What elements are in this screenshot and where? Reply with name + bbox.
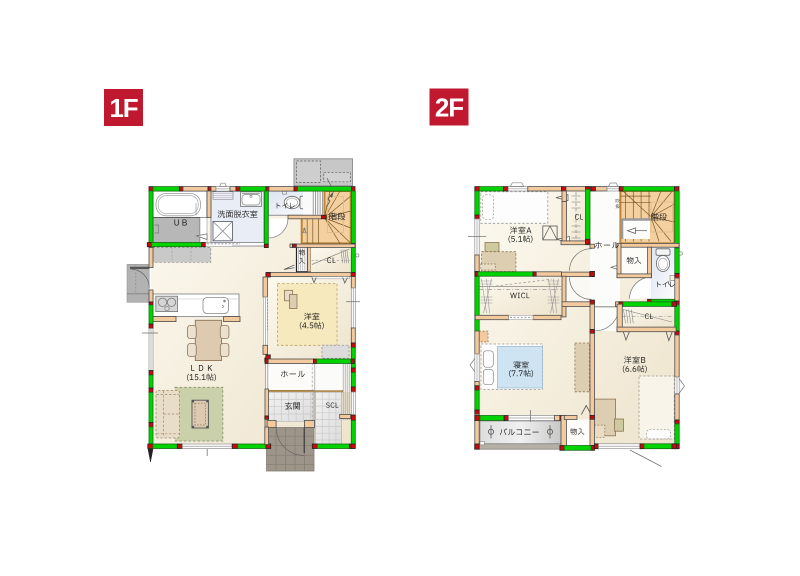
svg-text:2F: 2F: [435, 93, 463, 123]
svg-text:1F: 1F: [109, 93, 137, 123]
